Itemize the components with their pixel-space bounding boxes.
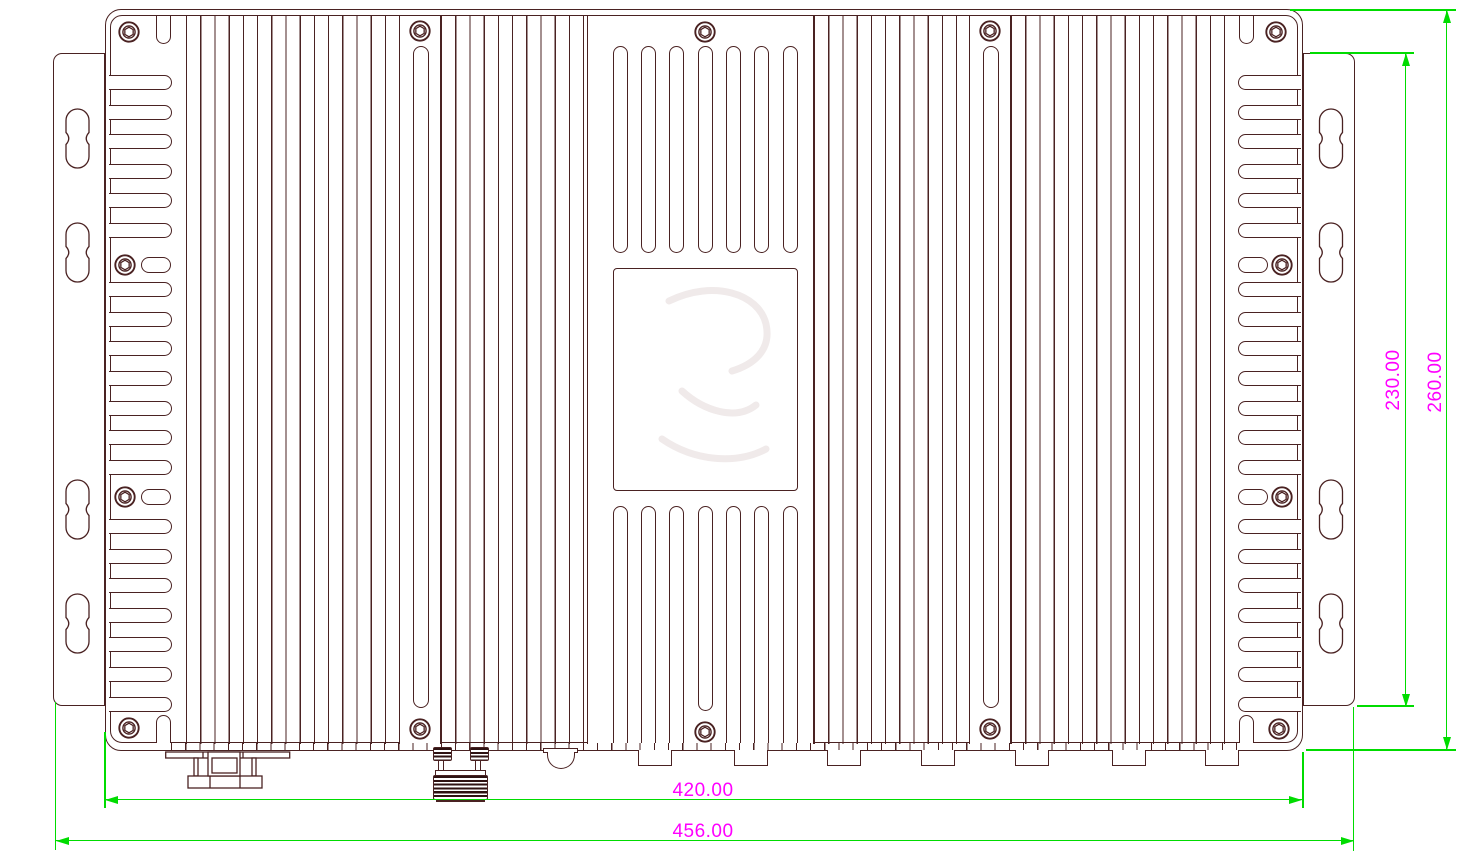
heatsink-fin bbox=[1238, 519, 1301, 534]
heatsink-fin bbox=[1238, 312, 1301, 327]
screw-head bbox=[1263, 19, 1289, 45]
fin-slot bbox=[726, 46, 741, 253]
extension-line bbox=[55, 702, 56, 850]
heatsink-fin bbox=[1238, 105, 1301, 120]
heatsink-fin bbox=[1238, 193, 1301, 208]
arrow-down-icon bbox=[1443, 737, 1451, 750]
heatsink-fin bbox=[1238, 223, 1301, 238]
fin-field bbox=[814, 16, 969, 744]
heatsink-fin bbox=[1238, 608, 1301, 623]
dimension-label-body-width: 420.00 bbox=[595, 782, 811, 800]
heatsink-fin bbox=[1238, 549, 1301, 564]
screw-head bbox=[116, 19, 142, 45]
fin-field bbox=[1011, 16, 1226, 744]
side-slot bbox=[1238, 489, 1268, 505]
corner-slot bbox=[156, 16, 171, 44]
bracket-left-slots bbox=[54, 54, 106, 707]
fin-slot bbox=[613, 506, 628, 743]
heatsink-fin bbox=[109, 371, 172, 386]
heatsink-fin bbox=[1238, 164, 1301, 179]
screw-head bbox=[977, 18, 1003, 44]
connector-tab bbox=[921, 750, 955, 766]
dimension-label-overall-width: 456.00 bbox=[595, 823, 811, 841]
heatsink-fin bbox=[1238, 637, 1301, 652]
heatsink-fin bbox=[109, 312, 172, 327]
heatsink-fin bbox=[109, 282, 172, 297]
side-slot bbox=[1238, 257, 1268, 273]
circular-connector bbox=[433, 775, 488, 800]
heatsink-fin bbox=[1238, 75, 1301, 90]
heatsink-fin bbox=[109, 578, 172, 593]
mounting-slot bbox=[1320, 109, 1343, 168]
screw-head bbox=[977, 716, 1003, 742]
screw-head bbox=[407, 716, 433, 742]
heatsink-fin bbox=[109, 667, 172, 682]
fin-field bbox=[186, 16, 399, 744]
drawing-canvas: 420.00 456.00 230.00 260.00 bbox=[0, 0, 1472, 856]
label-plate bbox=[613, 268, 798, 491]
extension-line bbox=[1353, 707, 1354, 851]
screw-head bbox=[1266, 716, 1292, 742]
heatsink-fin bbox=[109, 697, 172, 712]
mounting-bracket-left bbox=[53, 53, 105, 706]
fin-slot bbox=[783, 506, 798, 743]
screw-head bbox=[692, 719, 718, 745]
screw-head bbox=[1269, 252, 1295, 278]
heatsink-fin bbox=[109, 460, 172, 475]
dimension-line-bracket-height bbox=[1405, 53, 1406, 707]
extension-line bbox=[1302, 752, 1303, 808]
heatsink-fin bbox=[109, 193, 172, 208]
mounting-slot bbox=[66, 594, 89, 653]
arrow-down-icon bbox=[1402, 694, 1410, 707]
heatsink-fin bbox=[1238, 578, 1301, 593]
mounting-bracket-right bbox=[1303, 53, 1355, 706]
connector-tab bbox=[827, 750, 861, 766]
arrow-right-icon bbox=[1289, 796, 1302, 804]
bracket-right-slots bbox=[1304, 54, 1356, 707]
connector-tab bbox=[1015, 750, 1049, 766]
fin-slot bbox=[754, 506, 769, 743]
fin-slot bbox=[669, 46, 684, 253]
heatsink-fin bbox=[109, 164, 172, 179]
fin-slot bbox=[783, 46, 798, 253]
screw-head bbox=[112, 252, 138, 278]
fin-slot bbox=[641, 46, 656, 253]
connector-tab bbox=[1205, 750, 1239, 766]
heatsink-fin bbox=[109, 134, 172, 149]
heatsink-fin bbox=[1238, 371, 1301, 386]
antenna-stud bbox=[470, 747, 489, 761]
heatsink-fin bbox=[109, 401, 172, 416]
side-slot bbox=[141, 257, 171, 273]
mounting-slot bbox=[1320, 594, 1343, 653]
heatsink-fin bbox=[1238, 697, 1301, 712]
mounting-slot bbox=[1320, 480, 1343, 539]
heatsink-fin bbox=[1238, 341, 1301, 356]
extension-line bbox=[1290, 9, 1456, 10]
heatsink-fin bbox=[109, 519, 172, 534]
mounting-slot bbox=[66, 223, 89, 282]
dimension-label-overall-height: 260.00 bbox=[1427, 342, 1445, 422]
long-slot bbox=[413, 46, 429, 708]
extension-line bbox=[1306, 749, 1456, 750]
dome-button bbox=[547, 752, 575, 769]
arrow-left-icon bbox=[56, 837, 69, 845]
fin-slot bbox=[754, 46, 769, 253]
heatsink-fin bbox=[1238, 430, 1301, 445]
fin-slot bbox=[641, 506, 656, 743]
side-slot bbox=[141, 489, 171, 505]
dimension-label-bracket-height: 230.00 bbox=[1385, 340, 1403, 420]
corner-slot bbox=[1239, 16, 1254, 44]
corner-slot bbox=[156, 715, 171, 743]
long-slot bbox=[983, 46, 999, 708]
connector-tab bbox=[638, 750, 672, 766]
mounting-foot bbox=[165, 748, 291, 790]
dimension-line-overall-height bbox=[1446, 10, 1447, 750]
heatsink-fin bbox=[109, 105, 172, 120]
connector-tab bbox=[734, 750, 768, 766]
heatsink-fin bbox=[109, 608, 172, 623]
fin-slot bbox=[698, 46, 713, 253]
connector-tab bbox=[1112, 750, 1146, 766]
heatsink-fin bbox=[1238, 401, 1301, 416]
screw-head bbox=[692, 19, 718, 45]
mounting-slot bbox=[66, 480, 89, 539]
mounting-slot bbox=[1320, 223, 1343, 282]
corner-slot bbox=[1239, 715, 1254, 743]
arrow-up-icon bbox=[1443, 10, 1451, 23]
screw-head bbox=[116, 715, 142, 741]
heatsink-fin bbox=[109, 549, 172, 564]
heatsink-fin bbox=[1238, 282, 1301, 297]
fin-field bbox=[441, 16, 587, 744]
fin-slot bbox=[698, 506, 713, 711]
heatsink-fin bbox=[109, 341, 172, 356]
heatsink-fin bbox=[1238, 134, 1301, 149]
heatsink-fin bbox=[1238, 460, 1301, 475]
fin-slot bbox=[669, 506, 684, 743]
heatsink-fin bbox=[109, 430, 172, 445]
extension-line bbox=[1310, 52, 1414, 53]
heatsink-fin bbox=[109, 637, 172, 652]
fin-slot bbox=[726, 506, 741, 743]
faint-watermark bbox=[614, 269, 798, 491]
mounting-slot bbox=[66, 109, 89, 168]
heatsink-body bbox=[105, 9, 1303, 751]
fin-slot bbox=[613, 46, 628, 253]
heatsink-fin bbox=[109, 223, 172, 238]
screw-head bbox=[1269, 484, 1295, 510]
heatsink-fin bbox=[109, 75, 172, 90]
heatsink-fin bbox=[1238, 667, 1301, 682]
arrow-right-icon bbox=[1341, 837, 1354, 845]
screw-head bbox=[112, 484, 138, 510]
arrow-up-icon bbox=[1402, 53, 1410, 66]
arrow-left-icon bbox=[105, 796, 118, 804]
antenna-stud bbox=[433, 747, 452, 761]
screw-head bbox=[407, 18, 433, 44]
